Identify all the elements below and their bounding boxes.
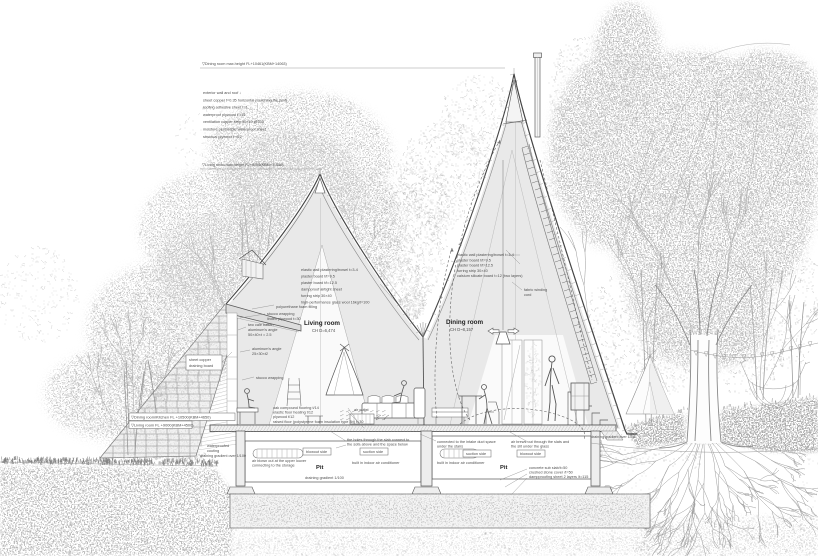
svg-text:crushed stone cover /t=50: crushed stone cover /t=50 (529, 471, 573, 475)
svg-text:moisture permeable waterproof: moisture permeable waterproof sheet (203, 128, 267, 132)
svg-text:built in indoor air conditione: built in indoor air conditioner (352, 461, 400, 465)
svg-text:furring strip 30×40: furring strip 30×40 (301, 294, 332, 298)
svg-text:concrete sub slab/t=50: concrete sub slab/t=50 (529, 466, 567, 470)
svg-text:stucco wrapping: stucco wrapping (267, 312, 294, 316)
svg-text:furring strip 30×40: furring strip 30×40 (457, 269, 488, 273)
svg-text:polyurethane foam filling: polyurethane foam filling (276, 305, 317, 309)
svg-text:the slit under the glass: the slit under the glass (511, 445, 549, 449)
svg-text:elastic floor heating t/12: elastic floor heating t/12 (273, 411, 313, 415)
svg-text:couting: couting (207, 449, 219, 453)
svg-text:the holes through the slab con: the holes through the slab connect to (347, 438, 409, 442)
svg-text:sheet copper t=0.35 horizontal: sheet copper t=0.35 horizontal (mulching… (203, 98, 288, 102)
svg-text:waterproof plywood t =15: waterproof plywood t =15 (203, 113, 246, 117)
svg-text:suction side: suction side (466, 452, 486, 456)
svg-text:the sofa above and the space b: the sofa above and the space below (347, 443, 408, 447)
svg-text:two cale batten: two cale batten (248, 323, 274, 327)
svg-text:plaster board t/t=9.5: plaster board t/t=9.5 (301, 275, 335, 279)
svg-text:calsium silicate board t=12 (t: calsium silicate board t=12 (two layers) (457, 274, 523, 278)
svg-text:Dining room: Dining room (446, 319, 483, 326)
svg-text:draining gradient over 1/50: draining gradient over 1/50 (591, 435, 635, 439)
svg-text:blowout side: blowout side (520, 452, 541, 456)
svg-text:elastic wall plastering/trowel: elastic wall plastering/trowel t=3-4 (457, 253, 514, 257)
svg-text:built in indoor air conditione: built in indoor air conditioner (437, 461, 485, 465)
svg-text:stucco wrapping: stucco wrapping (256, 376, 283, 380)
svg-text:blowout side: blowout side (306, 450, 327, 454)
svg-text:structual plywood t =12: structual plywood t =12 (203, 135, 242, 139)
svg-text:elastic wall plastering/trowel: elastic wall plastering/trowel t=3-4 (301, 268, 358, 272)
svg-text:▽Living room FL +9000(KBM+4500: ▽Living room FL +9000(KBM+4500) (131, 423, 194, 428)
svg-text:under the stairs: under the stairs (437, 445, 463, 449)
svg-text:cord: cord (524, 293, 531, 297)
svg-text:Living room: Living room (304, 320, 340, 327)
svg-text:plaster board t/t=12.5: plaster board t/t=12.5 (457, 264, 493, 268)
svg-text:raised floor (polystyrene foam: raised floor (polystyrene foam insulatio… (273, 420, 363, 424)
svg-text:▽Dining room max.height FL+104: ▽Dining room max.height FL+10461(KBM+140… (202, 62, 288, 66)
svg-text:▽Living room max.height FL+905: ▽Living room max.height FL+9058(KBM+1165… (202, 163, 284, 167)
svg-text:draining gradient 1/100: draining gradient 1/100 (305, 476, 344, 480)
svg-text:roofing adhesive sheet t=1: roofing adhesive sheet t=1 (203, 106, 248, 110)
svg-text:Pit: Pit (316, 465, 323, 471)
svg-text:CH D~8,157: CH D~8,157 (450, 327, 474, 332)
svg-text:aluminum's angle: aluminum's angle (248, 328, 277, 332)
svg-text:▽Dining room/Kitchen FL +10500: ▽Dining room/Kitchen FL +10500(KBM+4650) (131, 415, 211, 420)
svg-text:CH D=6,474: CH D=6,474 (312, 328, 336, 333)
svg-text:25×30×t2: 25×30×t2 (252, 352, 268, 356)
svg-text:air brews out through the slat: air brews out through the slats and (511, 440, 569, 444)
svg-text:Pit: Pit (500, 465, 507, 471)
svg-text:connecting to the storage: connecting to the storage (252, 464, 295, 468)
svg-text:aluminum's angle: aluminum's angle (252, 347, 281, 351)
svg-text:air blown out at the upper lou: air blown out at the upper louver (252, 459, 307, 463)
svg-text:dampproofing sheet 2 layers /t: dampproofing sheet 2 layers /t=115 (529, 475, 588, 479)
svg-text:suction side: suction side (363, 450, 383, 454)
svg-text:dampproof airtight sheet: dampproof airtight sheet (301, 288, 343, 292)
svg-text:plaster board t/t=9.5: plaster board t/t=9.5 (457, 258, 491, 262)
svg-text:linden plywood t=30: linden plywood t=30 (267, 317, 301, 321)
svg-text:fabric winding: fabric winding (524, 288, 547, 292)
svg-text:draining gradient over 1/100: draining gradient over 1/100 (200, 454, 246, 458)
svg-text:air outlet: air outlet (354, 408, 370, 412)
svg-text:50×40×t = 2.5: 50×40×t = 2.5 (248, 333, 272, 337)
svg-text:exterior wall and roof ↓: exterior wall and roof ↓ (203, 91, 241, 95)
svg-text:plaster board t/t=12.5: plaster board t/t=12.5 (301, 281, 337, 285)
svg-text:connected to the intake duct s: connected to the intake duct space (437, 440, 496, 444)
svg-text:plywood t/12: plywood t/12 (273, 415, 294, 419)
svg-text:draining board: draining board (189, 364, 213, 368)
svg-text:ventilation copper strip 30×40: ventilation copper strip 30×40 @303 (203, 120, 264, 124)
svg-text:sheet copper: sheet copper (189, 358, 212, 362)
svg-text:oak compound flooring t/14: oak compound flooring t/14 (273, 406, 319, 410)
svg-text:waterproofed: waterproofed (207, 444, 229, 448)
svg-text:high-performance glass wool 16: high-performance glass wool 16kg/t=100 (301, 301, 370, 305)
